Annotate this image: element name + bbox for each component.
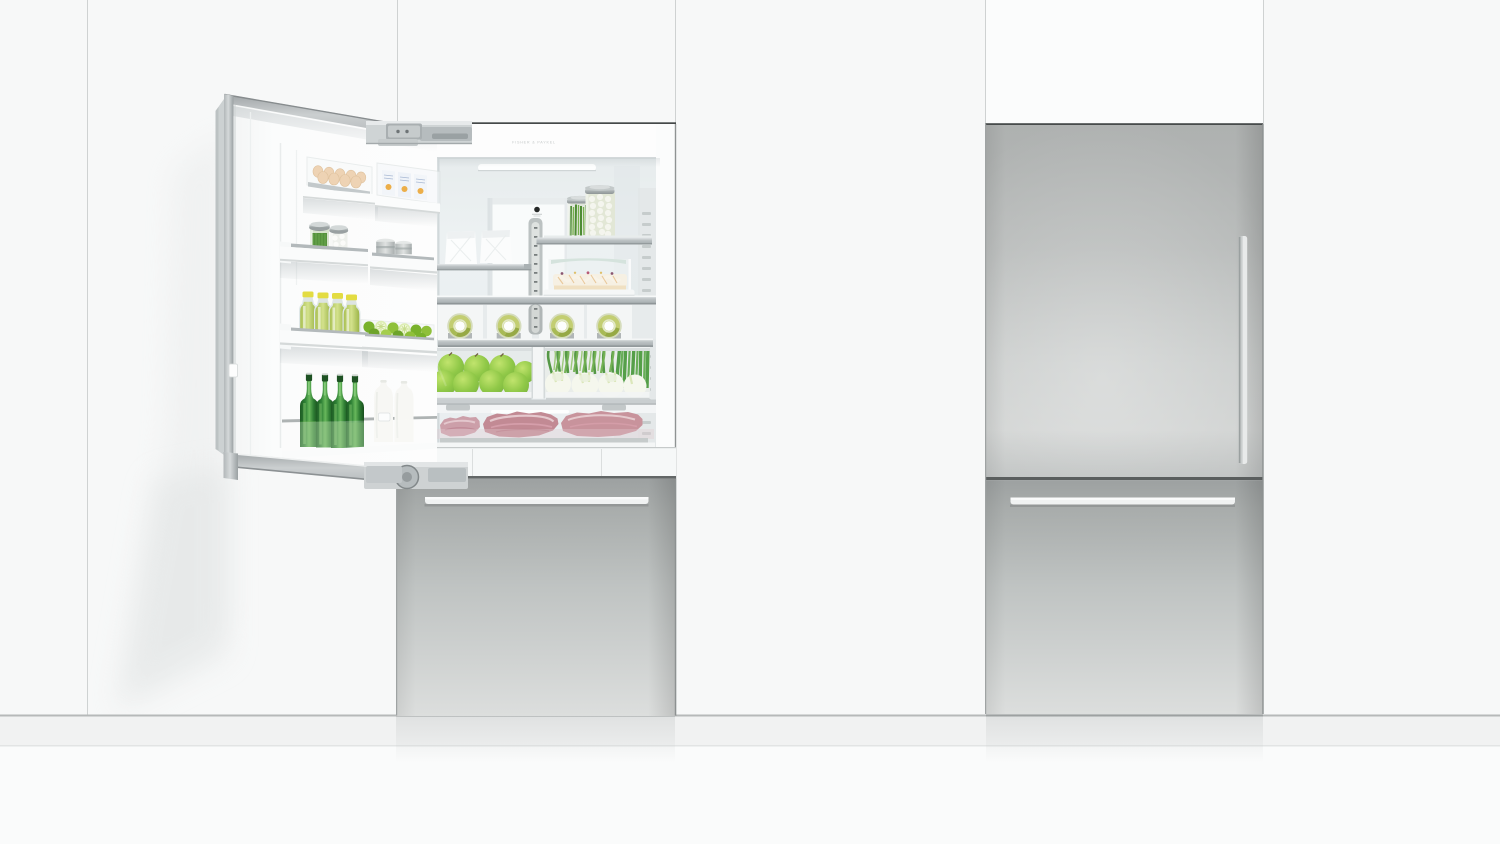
svg-text:FISHER & PAYKEL: FISHER & PAYKEL bbox=[512, 141, 556, 145]
